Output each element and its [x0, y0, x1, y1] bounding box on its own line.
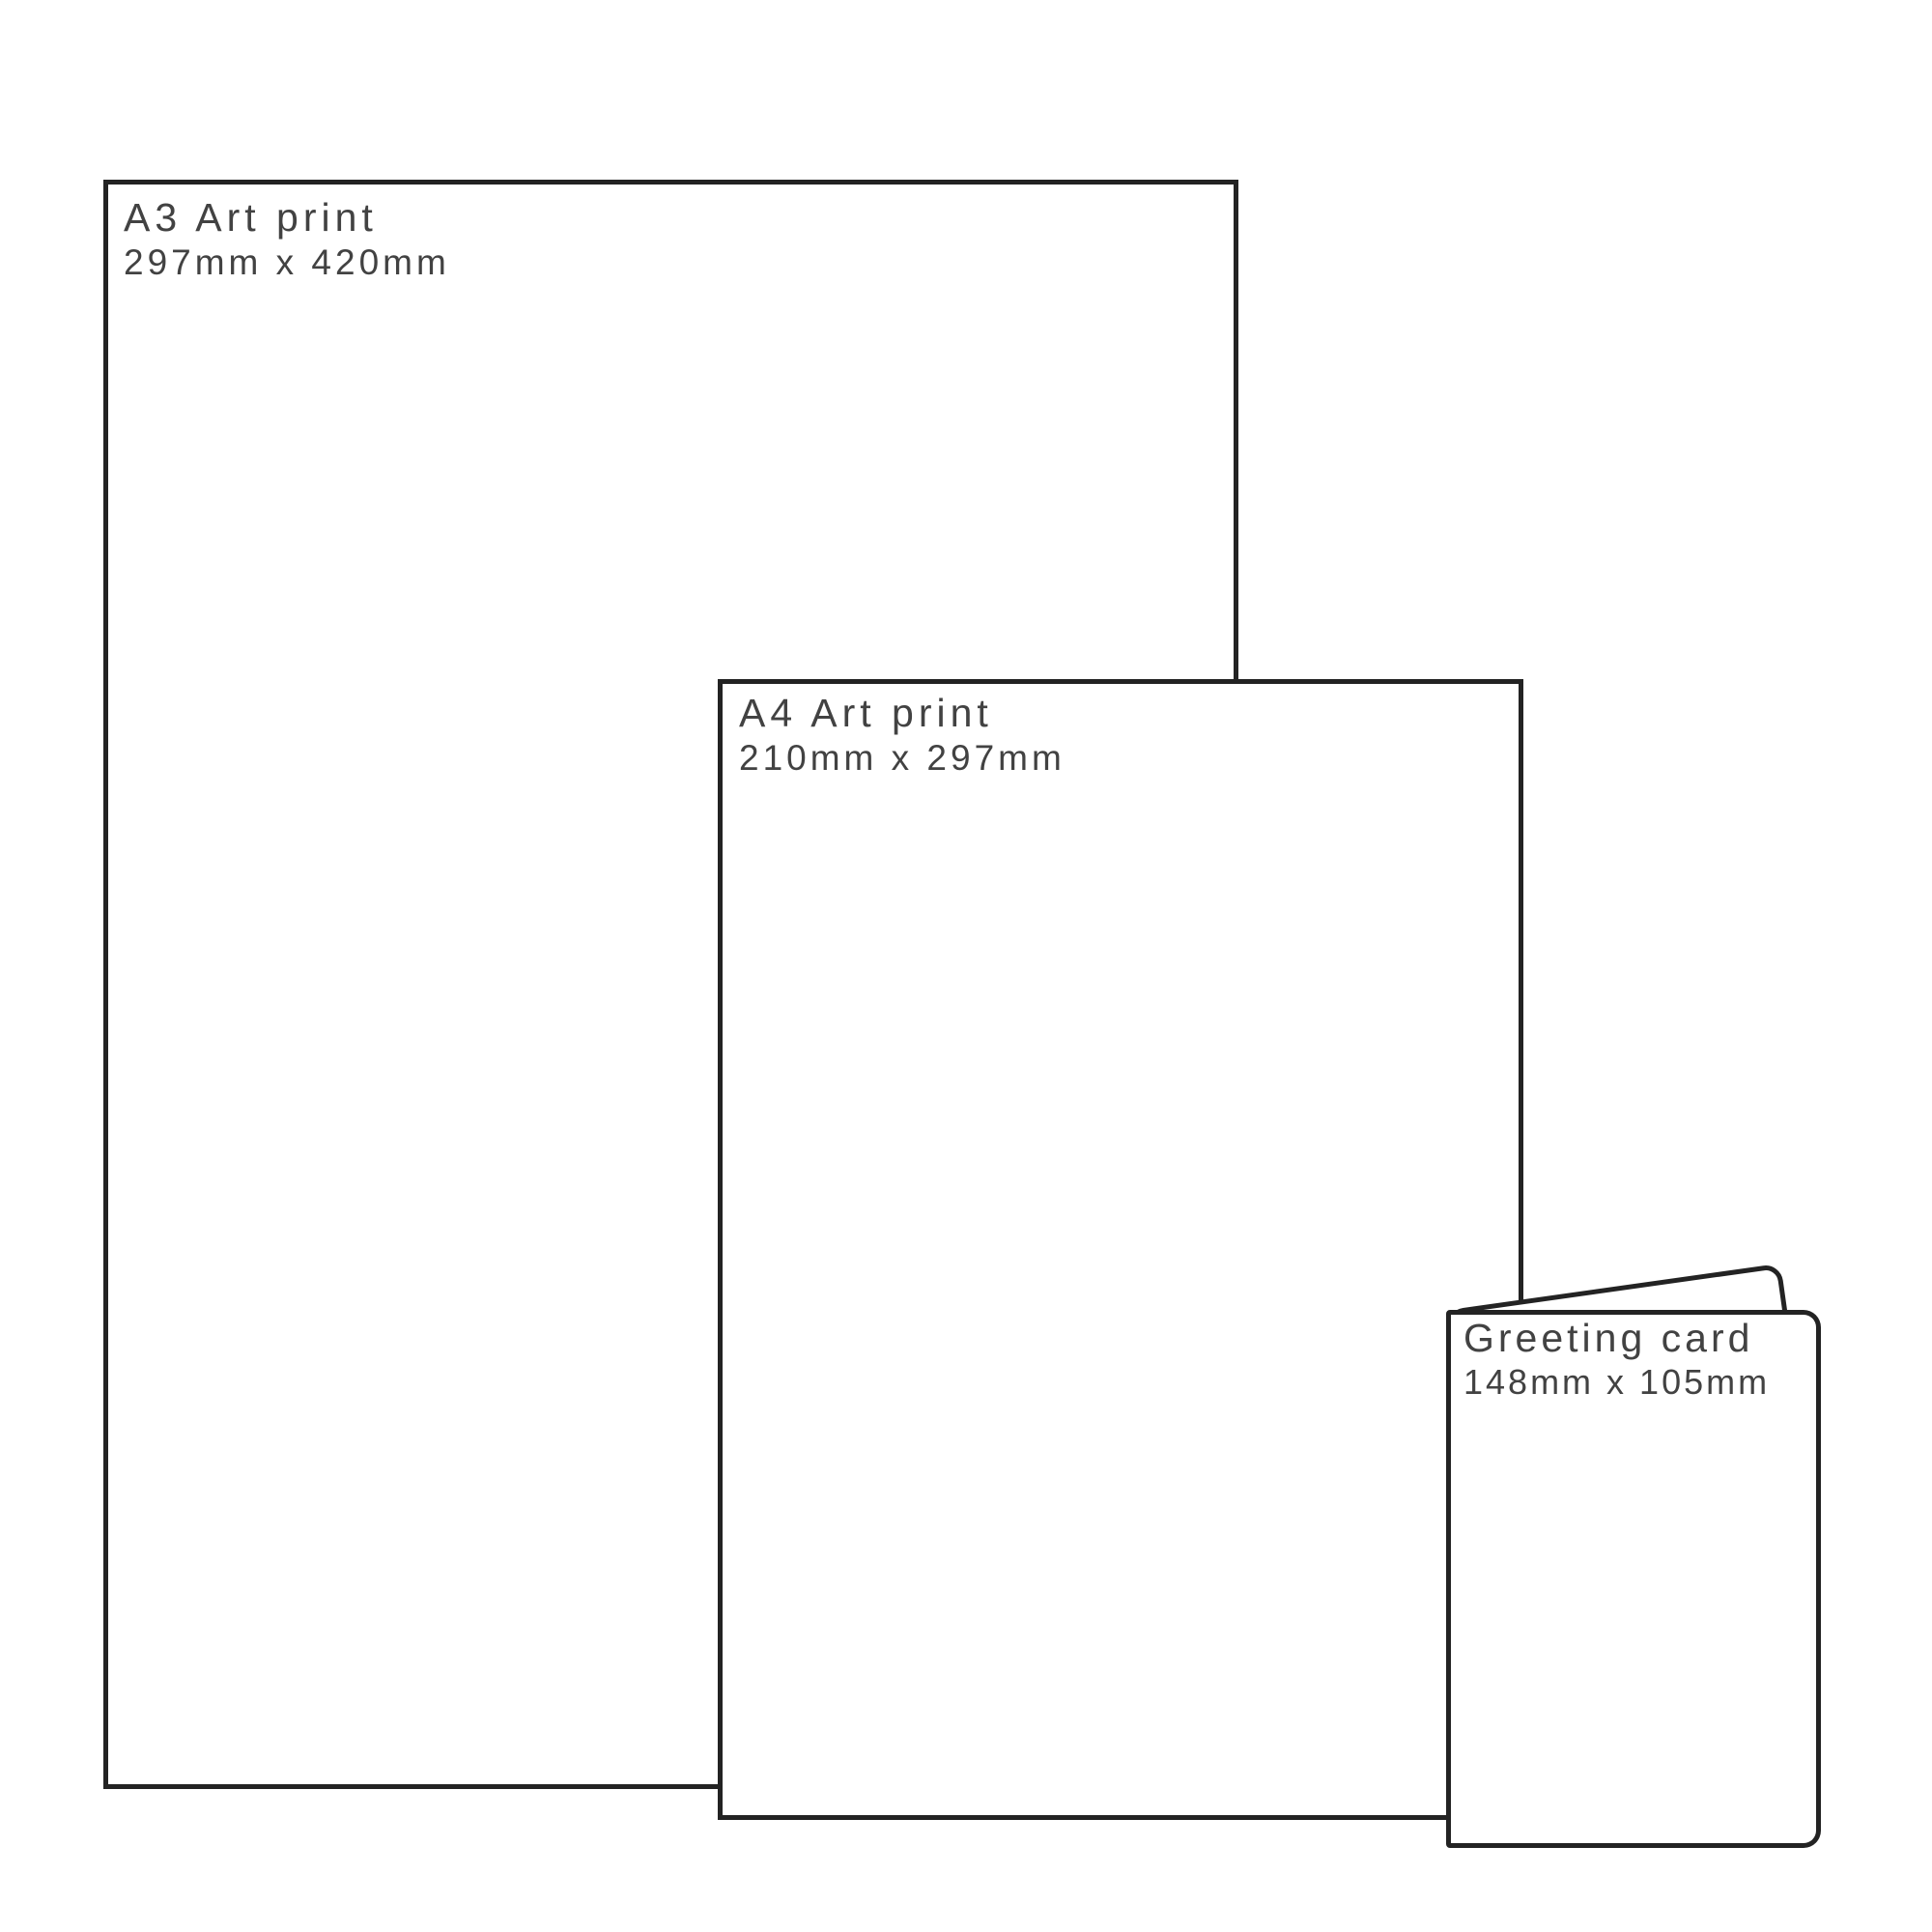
a3-dimensions: 297mm x 420mm: [124, 242, 450, 282]
greeting-card-outline: Greeting card 148mm x 105mm: [1446, 1310, 1821, 1848]
greeting-card-dimensions: 148mm x 105mm: [1463, 1363, 1770, 1402]
a4-dimensions: 210mm x 297mm: [739, 738, 1065, 778]
a4-print-outline: A4 Art print 210mm x 297mm: [718, 679, 1523, 1820]
greeting-card-label: Greeting card 148mm x 105mm: [1463, 1317, 1770, 1402]
greeting-card-title: Greeting card: [1463, 1317, 1770, 1361]
a4-label: A4 Art print 210mm x 297mm: [739, 692, 1065, 778]
size-comparison-diagram: A3 Art print 297mm x 420mm A4 Art print …: [0, 0, 1932, 1932]
a3-title: A3 Art print: [124, 196, 450, 241]
a4-title: A4 Art print: [739, 692, 1065, 736]
a3-label: A3 Art print 297mm x 420mm: [124, 196, 450, 282]
